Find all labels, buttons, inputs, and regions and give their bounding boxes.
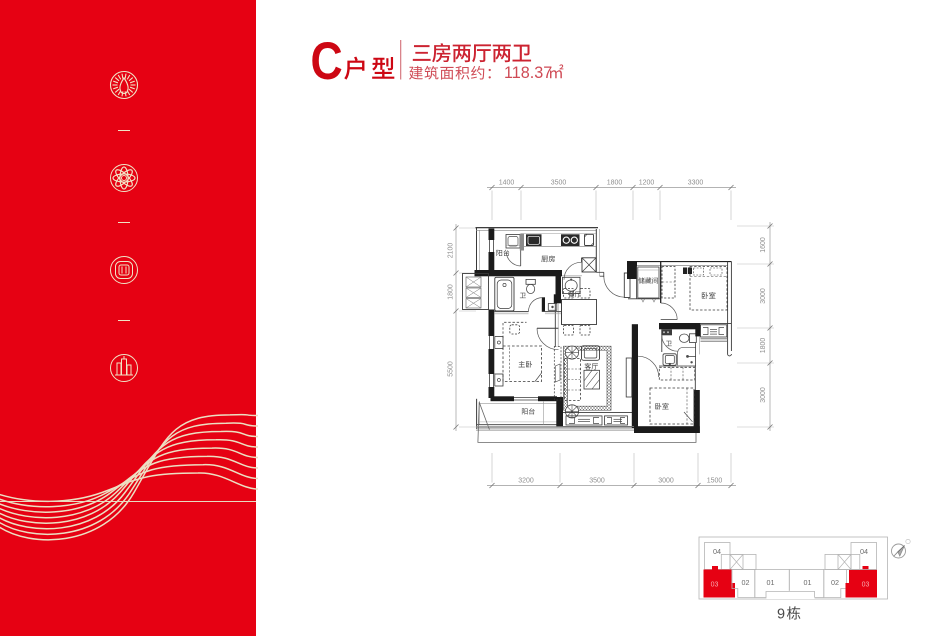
svg-text:1800: 1800 xyxy=(448,284,455,300)
svg-text:04: 04 xyxy=(860,547,868,556)
svg-text:2100: 2100 xyxy=(448,243,455,259)
svg-text:9: 9 xyxy=(777,607,785,623)
svg-text:C: C xyxy=(311,32,343,90)
svg-text:01: 01 xyxy=(767,578,775,587)
svg-text:3000: 3000 xyxy=(760,288,767,304)
svg-text:01: 01 xyxy=(804,578,812,587)
svg-text:1600: 1600 xyxy=(760,237,767,253)
svg-text:5500: 5500 xyxy=(448,361,455,377)
svg-text:1400: 1400 xyxy=(499,180,515,187)
svg-text:1200: 1200 xyxy=(639,180,655,187)
svg-text:3500: 3500 xyxy=(589,478,605,485)
svg-text:3000: 3000 xyxy=(658,478,674,485)
svg-text:02: 02 xyxy=(742,578,750,587)
svg-text:3500: 3500 xyxy=(551,180,567,187)
svg-text:3200: 3200 xyxy=(518,478,534,485)
svg-text:118.37: 118.37 xyxy=(504,64,552,82)
svg-text:1500: 1500 xyxy=(707,478,723,485)
svg-text:3300: 3300 xyxy=(688,180,704,187)
svg-text:1800: 1800 xyxy=(607,180,623,187)
svg-text:04: 04 xyxy=(713,547,721,556)
svg-text:03: 03 xyxy=(711,581,719,588)
svg-text:1800: 1800 xyxy=(760,338,767,354)
svg-text:3000: 3000 xyxy=(760,387,767,403)
svg-text:02: 02 xyxy=(831,578,839,587)
svg-text:03: 03 xyxy=(862,581,870,588)
